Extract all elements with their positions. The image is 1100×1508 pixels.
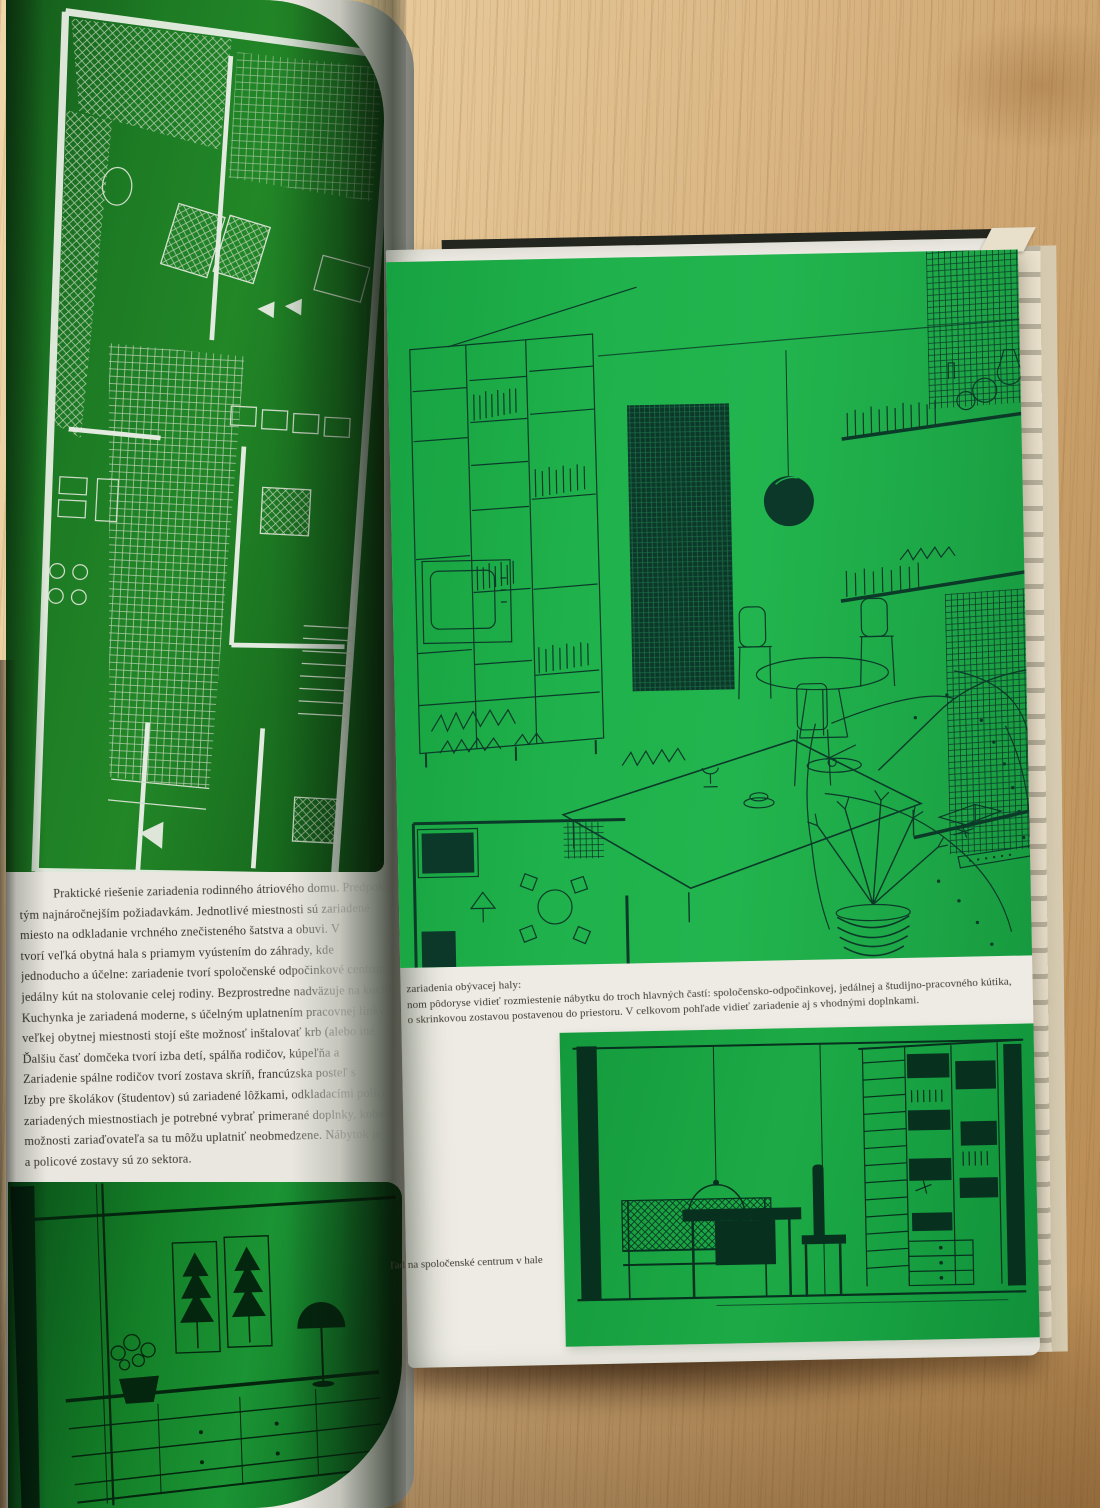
floor-plan-illustration (6, 0, 384, 872)
bottom-figure-caption: ľad na spoločenské centrum v hale (390, 1254, 543, 1272)
figure-caption-block: zariadenia obývacej haly: nom pôdoryse v… (406, 956, 1067, 1028)
dining-elevation-panel (560, 1023, 1040, 1346)
floor-plan-panel (6, 0, 384, 872)
right-page: zariadenia obývacej haly: nom pôdoryse v… (386, 238, 1040, 1368)
photo-of-open-book-on-table: Praktické riešenie zariadenia rodinného … (0, 0, 1100, 1508)
frame-left-shadow (0, 660, 16, 1508)
dining-elevation-illustration (560, 1023, 1040, 1346)
living-room-illustration (386, 250, 1032, 969)
living-room-panel (386, 250, 1032, 969)
